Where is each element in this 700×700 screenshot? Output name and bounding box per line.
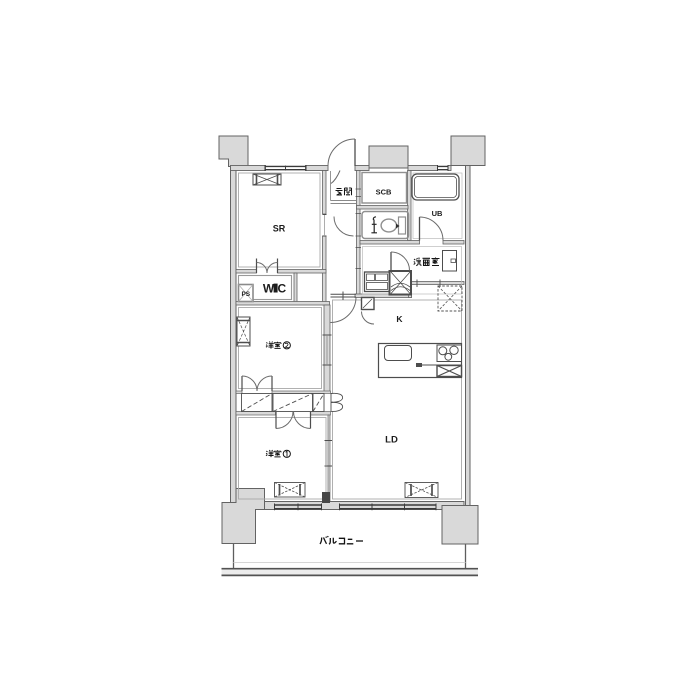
svg-text:UB: UB (432, 209, 443, 218)
svg-text:SR: SR (273, 224, 286, 234)
svg-text:LD: LD (385, 435, 398, 446)
svg-text:PS: PS (241, 291, 250, 298)
svg-text:K: K (396, 314, 403, 324)
svg-text:SCB: SCB (376, 188, 392, 197)
